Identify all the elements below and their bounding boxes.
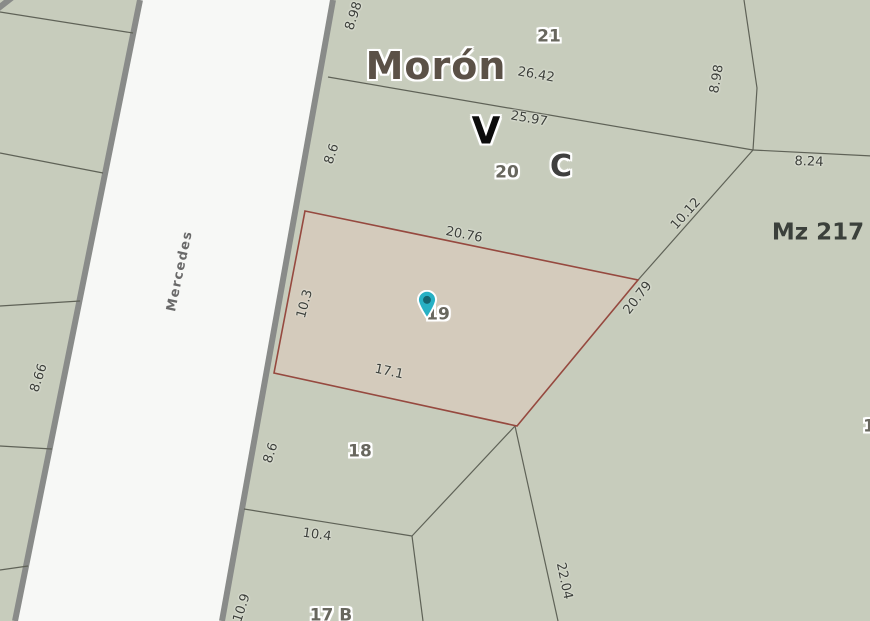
boundary-line bbox=[0, 12, 133, 33]
parcel-20-label: 20 bbox=[495, 165, 519, 182]
zone-c-label: C bbox=[550, 152, 572, 182]
parcel-21-label: 21 bbox=[537, 29, 561, 46]
parcel-edge-right-label: 1 bbox=[863, 419, 870, 436]
parcel-18-label: 18 bbox=[348, 444, 372, 461]
boundary-line bbox=[412, 426, 515, 536]
city-label: Morón bbox=[366, 47, 507, 85]
measurement-8-24: 8.24 bbox=[794, 155, 823, 169]
block-mz217-label: Mz 217 bbox=[772, 222, 864, 245]
zone-v-label: V bbox=[472, 113, 501, 150]
map-pin-icon[interactable] bbox=[415, 290, 439, 320]
boundary-line bbox=[412, 536, 423, 621]
boundary-line-22-04 bbox=[515, 426, 558, 621]
cadastral-map-canvas[interactable]: Morón V C Mz 217 Mercedes 21 20 19 18 17… bbox=[0, 0, 870, 621]
selected-parcel-19[interactable] bbox=[274, 211, 638, 426]
street-corner-sliver bbox=[0, 0, 14, 10]
boundary-line bbox=[0, 153, 103, 173]
boundary-line-8-98 bbox=[744, 0, 757, 150]
boundary-line-10-12 bbox=[638, 150, 753, 280]
parcel-17b-label: 17 B bbox=[310, 608, 353, 621]
measurement-10-4: 10.4 bbox=[302, 527, 332, 544]
boundary-line bbox=[0, 301, 80, 306]
boundary-line bbox=[0, 446, 52, 449]
